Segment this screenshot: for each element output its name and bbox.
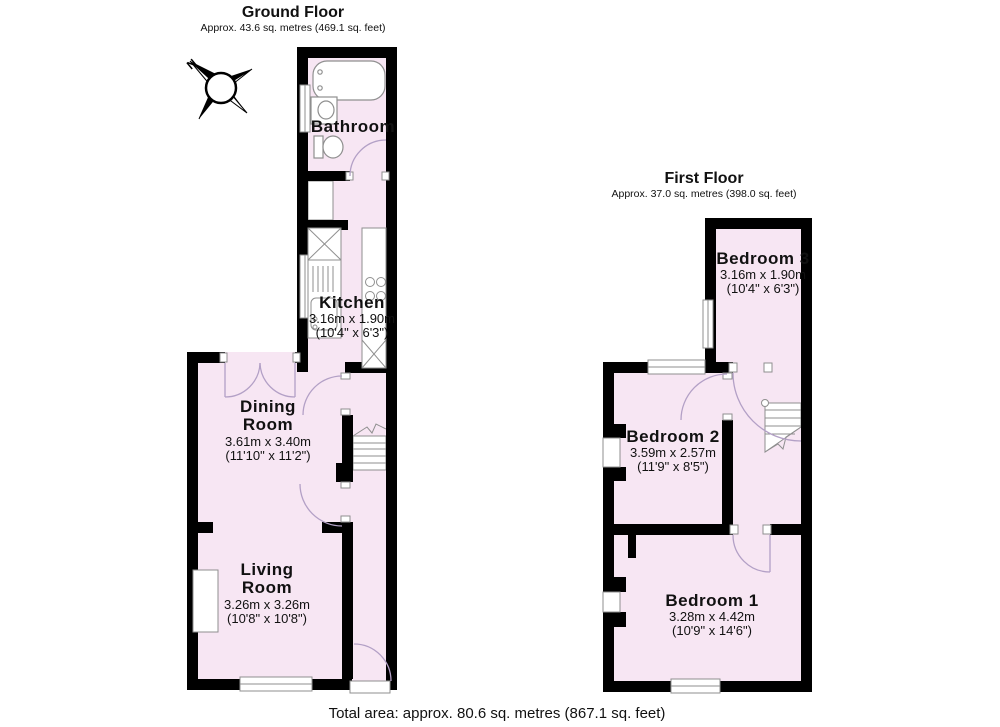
rear-lobby-cupboard — [308, 181, 333, 220]
bath-tub — [313, 61, 385, 100]
bedroom1-chimney — [603, 577, 626, 592]
living-room-label: Living Room 3.26m x 3.26m (10'8" x 10'8"… — [224, 561, 310, 626]
ground-floor-subtitle: Approx. 43.6 sq. metres (469.1 sq. feet) — [200, 23, 385, 34]
floorplan-page: N — [0, 0, 1000, 727]
front-door-frame — [350, 681, 390, 693]
kitchen-label: Kitchen 3.16m x 1.90m (10'4" x 6'3") — [309, 294, 395, 340]
first-floor-subtitle: Approx. 37.0 sq. metres (398.0 sq. feet) — [611, 189, 796, 200]
living-room-alcove — [193, 570, 218, 632]
ground-floor-title: Ground Floor — [242, 4, 344, 21]
bedroom1-chimney — [603, 612, 626, 627]
compass-icon: N — [184, 56, 252, 119]
first-floor-title: First Floor — [664, 170, 743, 187]
bathroom-label: Bathroom — [311, 118, 395, 136]
toilet-bowl — [323, 136, 343, 158]
bedroom1-label: Bedroom 1 3.28m x 4.42m (10'9" x 14'6") — [665, 592, 758, 638]
toilet-cistern — [314, 136, 323, 158]
bedroom2-chimney — [603, 467, 626, 481]
dining-room-label: Dining Room 3.61m x 3.40m (11'10" x 11'2… — [225, 398, 311, 463]
total-area-label: Total area: approx. 80.6 sq. metres (867… — [329, 706, 666, 722]
bath-tap — [318, 86, 322, 90]
bath-tap — [318, 70, 322, 74]
floorplan-drawing: N — [0, 0, 1000, 727]
bedroom2-label: Bedroom 2 3.59m x 2.57m (11'9" x 8'5") — [626, 428, 719, 474]
bedroom2-chimney — [603, 424, 626, 438]
bedroom3-label: Bedroom 3 3.16m x 1.90m (10'4" x 6'3") — [716, 250, 809, 296]
